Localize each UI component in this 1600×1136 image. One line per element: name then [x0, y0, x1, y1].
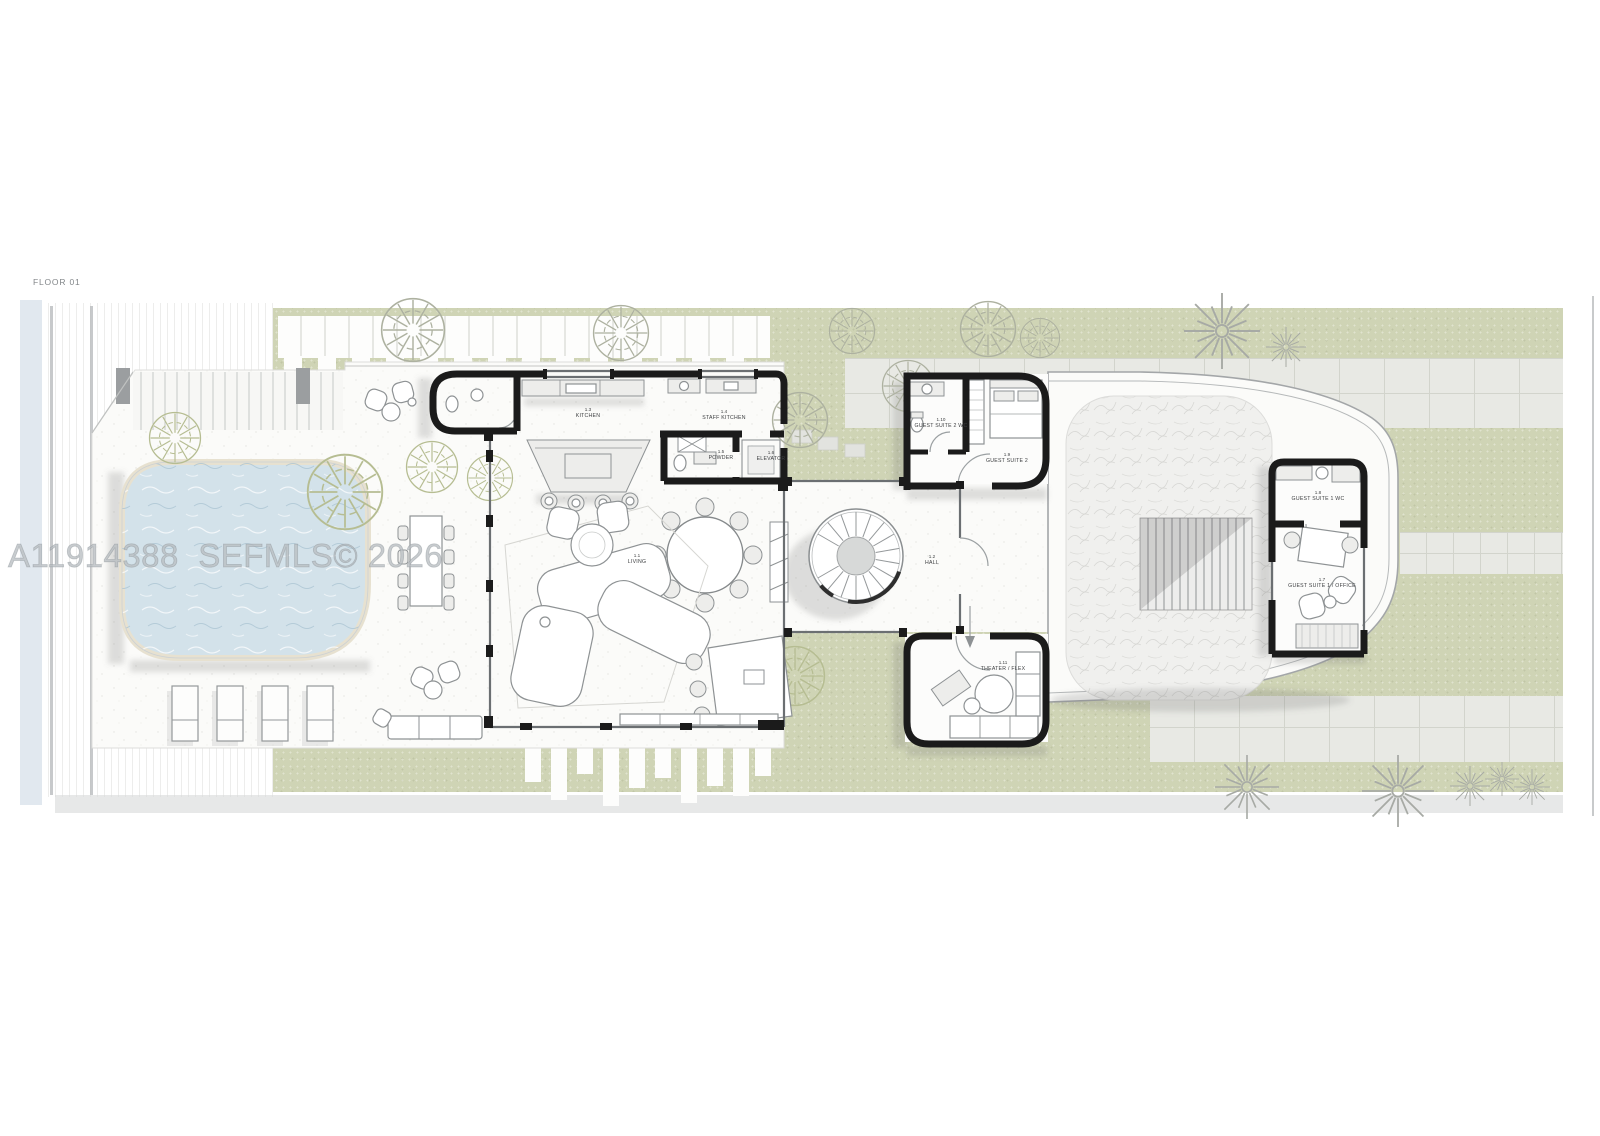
- watermark: A11914388 SEFMLS© 2026: [8, 537, 443, 575]
- site-edge-strip: [55, 795, 1563, 813]
- paver-band-bottom: [1150, 696, 1563, 762]
- paver-band-right: [1400, 532, 1563, 574]
- room-label-guest-suite-2: 1.9GUEST SUITE 2: [986, 452, 1028, 464]
- room-label-powder: 1.5POWDER: [709, 449, 734, 461]
- site-right-border: [1592, 296, 1594, 816]
- boardwalk-top: [278, 316, 770, 358]
- room-label-guest-suite-1-office: 1.7GUEST SUITE 1 / OFFICE: [1288, 577, 1356, 589]
- floor-label: FLOOR 01: [33, 277, 81, 287]
- floor-plan-canvas: FLOOR 01 A11914388 SEFMLS© 2026: [0, 0, 1600, 1136]
- room-label-kitchen: 1.3KITCHEN: [576, 407, 601, 419]
- room-label-guest-suite-1-wc: 1.8GUEST SUITE 1 WC: [1292, 490, 1345, 502]
- room-label-elevator: 1.6ELEVATOR: [757, 450, 786, 462]
- room-label-staff-kitchen: 1.4STAFF KITCHEN: [702, 409, 746, 421]
- room-label-hall: 1.2HALL: [925, 554, 939, 566]
- room-label-living: 1.1LIVING: [628, 553, 647, 565]
- room-label-theater-flex: 1.11THEATER / FLEX: [981, 660, 1026, 672]
- room-label-guest-suite-2-wc: 1.10GUEST SUITE 2 WC: [915, 417, 968, 429]
